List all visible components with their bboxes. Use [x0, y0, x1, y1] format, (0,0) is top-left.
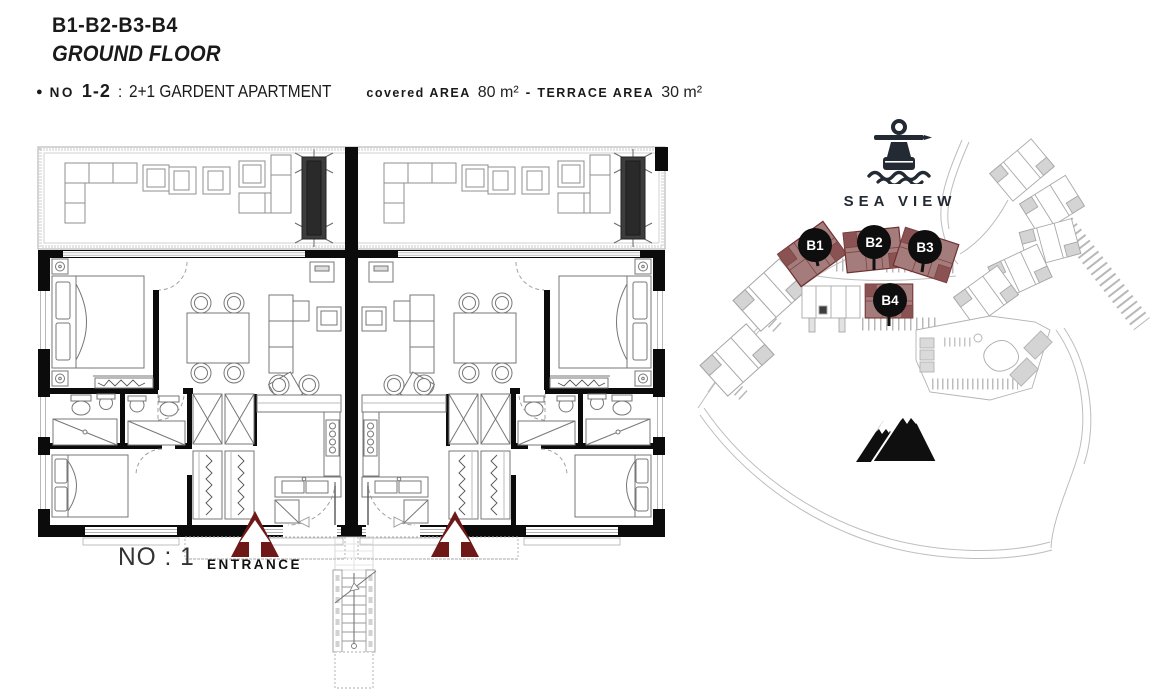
apartment-info-line: ● NO 1-2 : 2+1 GARDENT APARTMENT covered…: [36, 81, 702, 102]
page-title: B1-B2-B3-B4: [52, 14, 224, 38]
site-marker-b2: B2: [857, 225, 891, 259]
floor-plan: [35, 145, 668, 692]
site-marker-b3: B3: [908, 230, 942, 264]
apartment-unit-1: [36, 250, 345, 559]
covered-area-label: covered AREA: [366, 86, 470, 100]
sea-view-badge: SEA VIEW: [836, 118, 964, 210]
unit-no-label: NO: [50, 85, 75, 100]
covered-area-value: 80 m²: [478, 84, 519, 102]
mountains-icon: [856, 406, 937, 462]
buoy-icon: [864, 118, 936, 184]
colon: :: [118, 84, 122, 102]
page: B1-B2-B3-B4 GROUND FLOOR ● NO 1-2 : 2+1 …: [0, 0, 1164, 692]
floor-title: GROUND FLOOR: [52, 41, 221, 67]
sea-view-label: SEA VIEW: [836, 193, 964, 210]
terrace-area-value: 30 m²: [661, 84, 702, 102]
site-marker-b4: B4: [873, 283, 907, 317]
unit-no-value: 1-2: [82, 81, 111, 102]
apartment-unit-2: [358, 250, 667, 559]
header: B1-B2-B3-B4 GROUND FLOOR: [52, 14, 235, 67]
dash: -: [526, 84, 531, 100]
stairs: [333, 537, 376, 688]
pool-complex: [916, 316, 1052, 400]
site-marker-b1: B1: [798, 228, 832, 262]
unit-number-label: NO : 1: [118, 543, 195, 572]
terrace-area-label: TERRACE AREA: [537, 86, 654, 100]
bullet-icon: ●: [36, 86, 43, 98]
apartment-type: 2+1 GARDENT APARTMENT: [129, 81, 331, 102]
entrance-label: ENTRANCE: [207, 557, 302, 572]
party-wall: [345, 147, 358, 537]
